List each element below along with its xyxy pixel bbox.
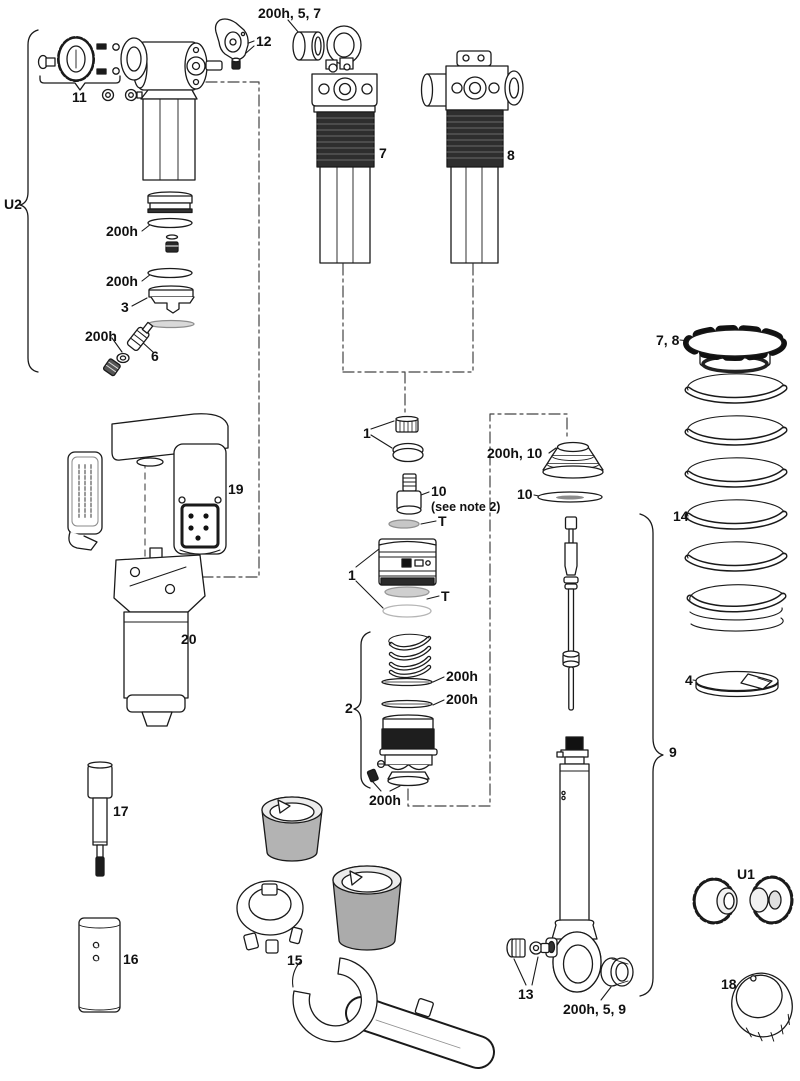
callout-disc-10: 10 [517,487,533,501]
part-u1-knob-a [695,880,737,922]
part-14-coil-spring [688,374,784,631]
callout-part-20: 20 [181,632,197,646]
parts-artwork [0,0,800,1081]
callout-u2: U2 [4,197,22,211]
part-7-8-preload-collar [688,330,782,372]
assembly-boundary-lines [197,82,567,806]
part2-brace [354,632,370,788]
part-17-shaft-tool [88,762,112,876]
callout-oring-top1: 200h [106,224,138,238]
part-1-top-nut [396,417,418,433]
callout-preload-7-8: 7, 8 [656,333,679,347]
callout-see-note: (see note 2) [431,501,500,514]
callout-part-8: 8 [507,148,515,162]
callout-part-11: 11 [72,90,87,104]
part-4-spring-retainer [696,672,778,697]
callout-oring-valve: 200h [85,329,117,343]
callout-part-1-upper: 1 [363,426,371,440]
part-bellows-200h-10 [543,443,603,479]
part-200h-screw [367,761,385,783]
part-15-collar [237,881,303,953]
part-u2-small-stack [166,235,178,252]
callout-t-lower: T [441,589,450,603]
part-disc-10 [538,492,602,502]
part-16-sleeve-tool [79,918,120,1012]
callout-part-18: 18 [721,977,737,991]
part-11-knob-group [39,38,148,101]
part-9-shock-body [546,737,601,992]
callout-oring-top2: 200h [106,274,138,288]
part-t-ring-upper [389,520,419,528]
callout-part-7: 7 [379,146,387,160]
part-u2-thin-disc [148,321,194,328]
callout-part-19: 19 [228,482,244,496]
callout-part-15: 15 [287,953,303,967]
part-bushing-bottom [601,958,633,986]
callout-part-4: 4 [685,673,693,687]
callout-part-13: 13 [518,987,534,1001]
part-oring-top2 [148,269,192,278]
diagram-canvas: 200h, 5, 7 12 11 U2 7 8 200h 200h 3 200h… [0,0,800,1081]
callout-bellows: 200h, 10 [487,446,542,460]
callout-screw-200h: 200h [369,793,401,807]
part-15-sleeve-b [333,866,401,950]
callout-oring-mid2: 200h [446,692,478,706]
part-bushing-top [293,32,324,60]
part-15-spanner-wrench [293,958,478,1052]
part-3-piston [149,286,194,313]
part-15-sleeve-a [262,797,322,861]
callout-part-2: 2 [345,701,353,715]
part-13-hardware [507,939,549,957]
callout-part-3: 3 [121,300,129,314]
part-2-piston [380,715,437,770]
callout-t-upper: T [438,514,447,528]
part-u2-seal-head [148,192,192,213]
callout-bushing-top: 200h, 5, 7 [258,6,321,20]
part-2-rebound-spring [389,634,429,676]
part-oring-top1 [148,219,192,228]
part-9-damper-shaft [563,517,579,710]
part9-brace [640,514,663,996]
callout-u1: U1 [737,867,755,881]
callout-oring-mid1: 200h [446,669,478,683]
part-19-battery [68,452,102,550]
part-u1-knob-b [750,878,791,922]
part-oring-mid2 [382,701,432,708]
callout-part-6: 6 [151,349,159,363]
part-1-piston-body [379,539,436,617]
callout-part-16: 16 [123,952,139,966]
callout-part-9: 9 [669,745,677,759]
part-19-control-module [112,414,228,554]
callout-part-17: 17 [113,804,129,818]
part-1-top-ring [393,444,423,462]
callout-part-12: 12 [256,34,272,48]
callout-part-1-lower: 1 [348,568,356,582]
part-oring-mid1 [382,679,432,686]
part-7-shock-assembly [312,26,377,263]
part-2-bottom-cap [388,772,429,786]
callout-part-10: 10 [431,484,447,498]
part-10-valve [397,474,421,514]
u2-brace [20,30,38,372]
callout-bushing-bottom: 200h, 5, 9 [563,1002,626,1016]
callout-part-14: 14 [673,509,689,523]
